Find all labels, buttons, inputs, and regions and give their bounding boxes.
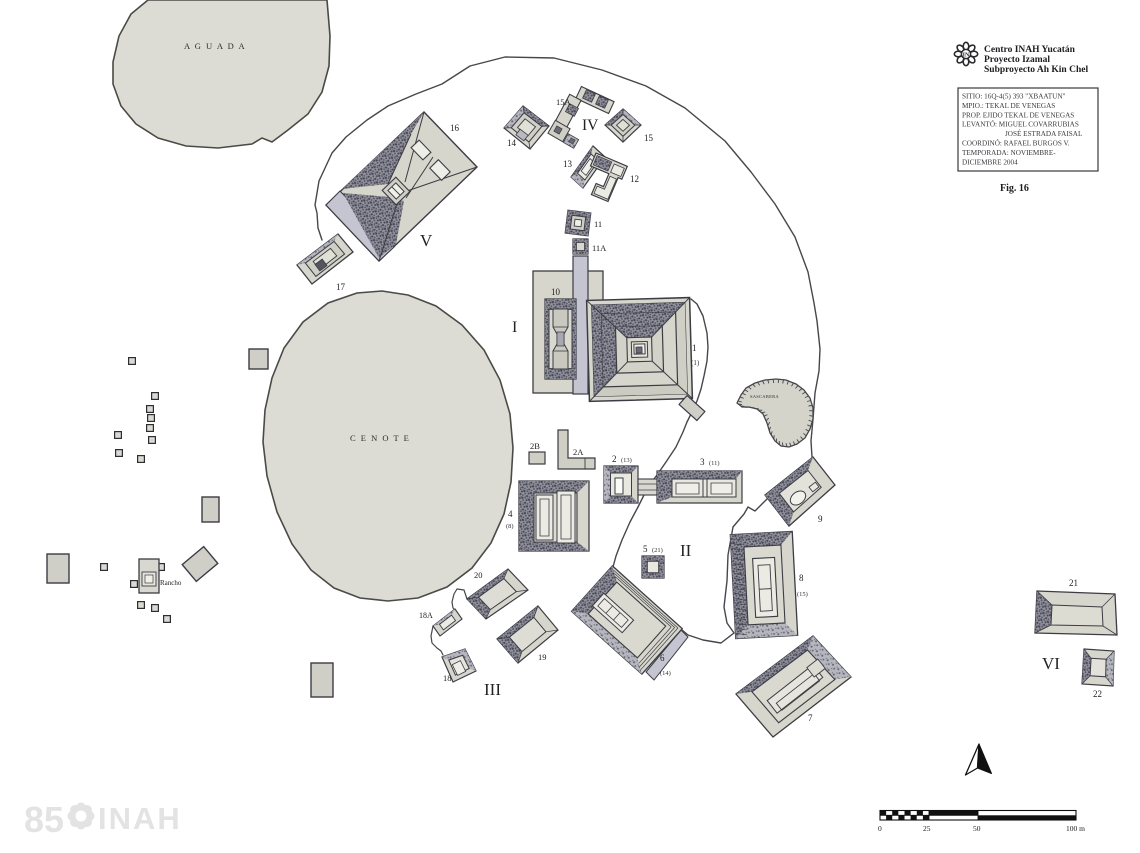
svg-text:25: 25 [923,824,931,833]
svg-text:5: 5 [643,544,648,554]
svg-text:(14): (14) [660,670,671,677]
svg-text:A G U A D A: A G U A D A [184,41,246,51]
svg-text:15A: 15A [556,97,572,107]
svg-text:3: 3 [700,457,705,467]
svg-text:21: 21 [1069,578,1078,588]
svg-text:17: 17 [336,282,346,292]
svg-text:2B: 2B [530,441,540,451]
svg-text:2: 2 [612,454,617,464]
svg-text:7: 7 [808,713,813,723]
svg-text:(1): (1) [691,359,700,367]
svg-text:22: 22 [1093,689,1102,699]
svg-text:SITIO: 16Q-4(5) 393 "XBAATUN": SITIO: 16Q-4(5) 393 "XBAATUN" [962,93,1066,101]
svg-text:0: 0 [878,824,882,833]
svg-text:III: III [484,680,501,699]
svg-text:I: I [512,319,517,336]
svg-text:Fig. 16: Fig. 16 [1000,183,1029,194]
svg-text:V: V [420,231,433,250]
svg-text:11A: 11A [592,243,607,253]
svg-text:SASCABERA: SASCABERA [750,394,779,399]
svg-text:Proyecto Izamal: Proyecto Izamal [984,55,1050,65]
svg-text:15: 15 [644,133,654,143]
svg-text:IV: IV [582,117,599,134]
svg-text:100 m: 100 m [1066,824,1085,833]
svg-text:(21): (21) [652,547,663,554]
svg-text:COORDINÓ: RAFAEL BURGOS V.: COORDINÓ: RAFAEL BURGOS V. [962,138,1070,148]
svg-text:II: II [680,541,692,560]
svg-text:Subproyecto Ah Kin Chel: Subproyecto Ah Kin Chel [984,65,1088,75]
svg-text:DICIEMBRE 2004: DICIEMBRE 2004 [962,158,1018,166]
svg-text:18A: 18A [419,611,433,620]
svg-text:1: 1 [692,343,697,353]
svg-text:PROP. EJIDO TEKAL DE VENEGAS: PROP. EJIDO TEKAL DE VENEGAS [962,111,1074,119]
svg-text:JOSÉ ESTRADA FAISAL: JOSÉ ESTRADA FAISAL [1005,128,1082,138]
svg-text:LEVANTÓ: MIGUEL COVARRUBIAS: LEVANTÓ: MIGUEL COVARRUBIAS [962,119,1079,129]
svg-text:TEMPORADA: NOVIEMBRE-: TEMPORADA: NOVIEMBRE- [962,149,1056,157]
svg-text:(15): (15) [797,591,808,598]
svg-text:2A: 2A [573,447,584,457]
svg-text:8: 8 [799,573,804,583]
svg-text:12: 12 [630,174,639,184]
svg-text:INAH: INAH [98,801,182,836]
svg-text:Rancho: Rancho [160,579,182,587]
svg-text:4: 4 [508,509,513,519]
svg-text:MPIO.: TEKAL DE VENEGAS: MPIO.: TEKAL DE VENEGAS [962,102,1055,110]
svg-text:18: 18 [443,673,452,683]
svg-text:50: 50 [973,824,981,833]
svg-text:20: 20 [474,570,483,580]
svg-text:11: 11 [594,219,602,229]
svg-text:VI: VI [1042,654,1060,673]
svg-text:(8): (8) [506,523,514,530]
svg-text:9: 9 [818,514,823,524]
svg-text:IN: IN [963,53,970,59]
svg-text:C E N O T E: C E N O T E [350,433,410,443]
svg-text:Centro INAH Yucatán: Centro INAH Yucatán [984,45,1076,55]
svg-text:85: 85 [24,799,64,840]
svg-text:(13): (13) [621,457,632,464]
svg-text:13: 13 [563,159,573,169]
svg-text:19: 19 [538,652,547,662]
svg-text:6: 6 [660,653,665,663]
svg-text:10: 10 [551,287,561,297]
svg-text:14: 14 [507,138,517,148]
svg-text:16: 16 [450,123,460,133]
svg-text:(11): (11) [709,460,720,467]
